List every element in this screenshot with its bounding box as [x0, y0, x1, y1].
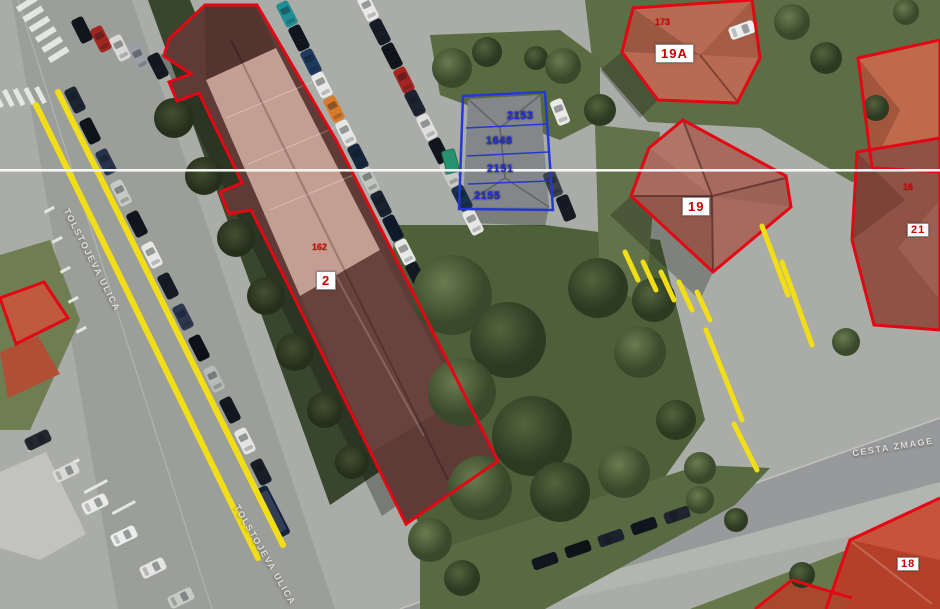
- small-building-number: 16: [903, 182, 913, 192]
- small-building-number: 173: [655, 17, 670, 27]
- survey-line: [0, 169, 940, 172]
- building-number-box: 2: [316, 271, 336, 290]
- parcel-number-label: 2153: [507, 110, 533, 122]
- parcel-number-label: 1648: [486, 135, 512, 147]
- building-number-box: 19: [682, 197, 710, 216]
- building-number-box: 19A: [655, 44, 694, 63]
- building-number-box: 18: [897, 557, 919, 571]
- parcel-number-label: 2155: [474, 190, 500, 202]
- aerial-imagery: [0, 0, 940, 609]
- parcel-number-label: 2151: [487, 163, 513, 175]
- map-viewport[interactable]: 2 19 19A 21 18 2153 1648 2151 2155 162 1…: [0, 0, 940, 609]
- building-number-box: 21: [907, 223, 929, 237]
- small-building-number: 162: [312, 242, 327, 252]
